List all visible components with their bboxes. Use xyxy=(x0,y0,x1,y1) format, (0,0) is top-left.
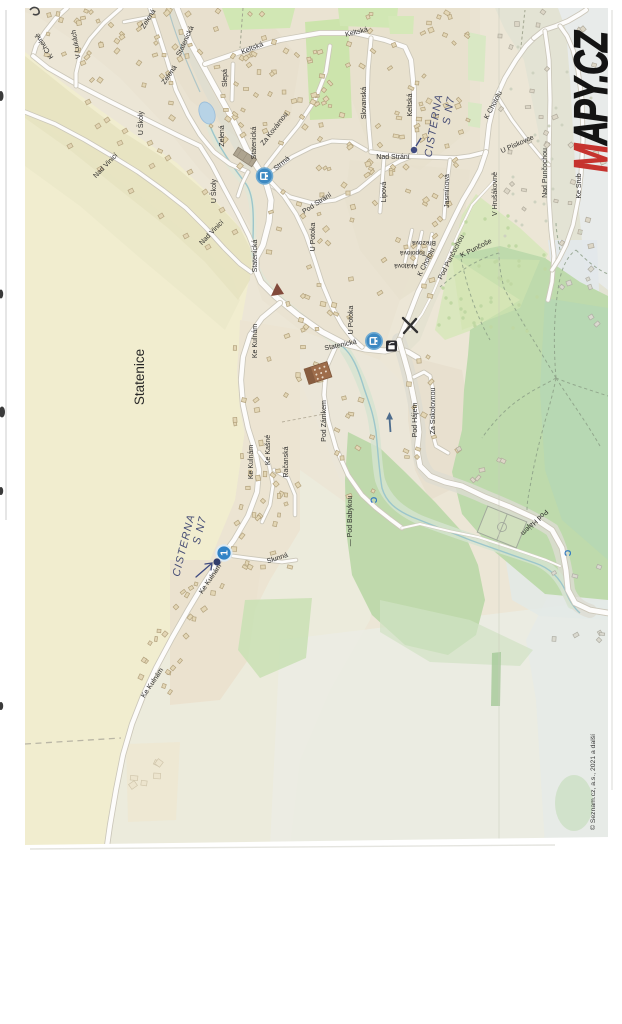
svg-text:© Seznam.cz, a.s., 2021 a dalš: © Seznam.cz, a.s., 2021 a další xyxy=(589,734,597,830)
svg-text:MAPY.CZ: MAPY.CZ xyxy=(565,29,618,172)
